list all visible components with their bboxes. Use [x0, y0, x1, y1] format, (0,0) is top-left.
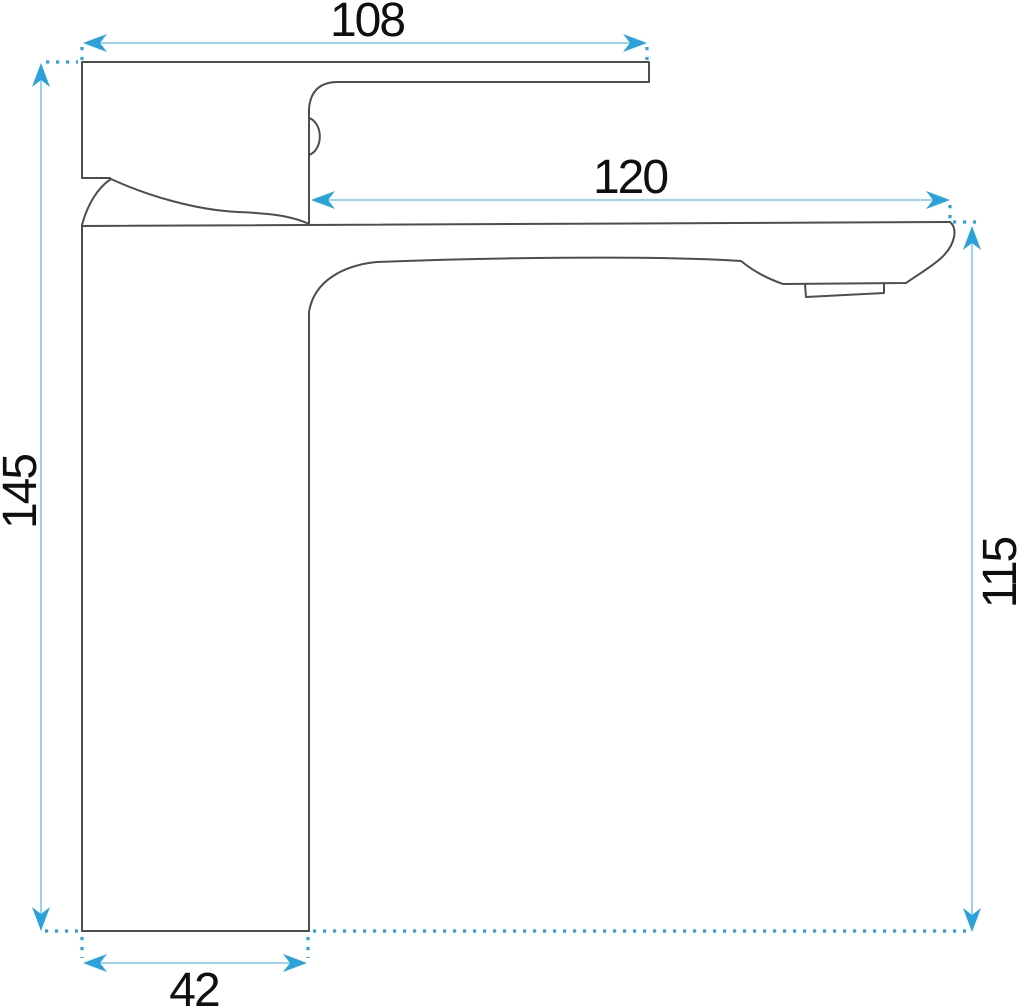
dimension-108-label: 108	[330, 0, 404, 47]
dimension-145: 145	[0, 62, 78, 931]
spout-underside-path	[309, 222, 955, 931]
handle-head-left-edge	[82, 62, 110, 178]
faucet-outline	[82, 62, 955, 931]
cartridge-bump-path	[309, 118, 320, 155]
spout-top-line	[82, 222, 950, 226]
dimension-115: 115	[313, 222, 1020, 932]
dimension-115-label: 115	[974, 537, 1020, 608]
aerator-path	[805, 284, 884, 297]
dimension-42: 42	[82, 937, 308, 1008]
drawing-canvas: 108 145 120 115	[0, 0, 1020, 1008]
faucet-dimension-drawing: 108 145 120 115	[0, 0, 1020, 1008]
dimension-120-label: 120	[593, 151, 667, 204]
body-column-path	[82, 226, 309, 931]
dimension-145-label: 145	[0, 455, 47, 529]
escutcheon-dome-path	[82, 179, 309, 225]
dimension-108: 108	[82, 0, 647, 60]
dimension-120: 120	[311, 151, 950, 220]
dimension-42-label: 42	[169, 964, 219, 1008]
